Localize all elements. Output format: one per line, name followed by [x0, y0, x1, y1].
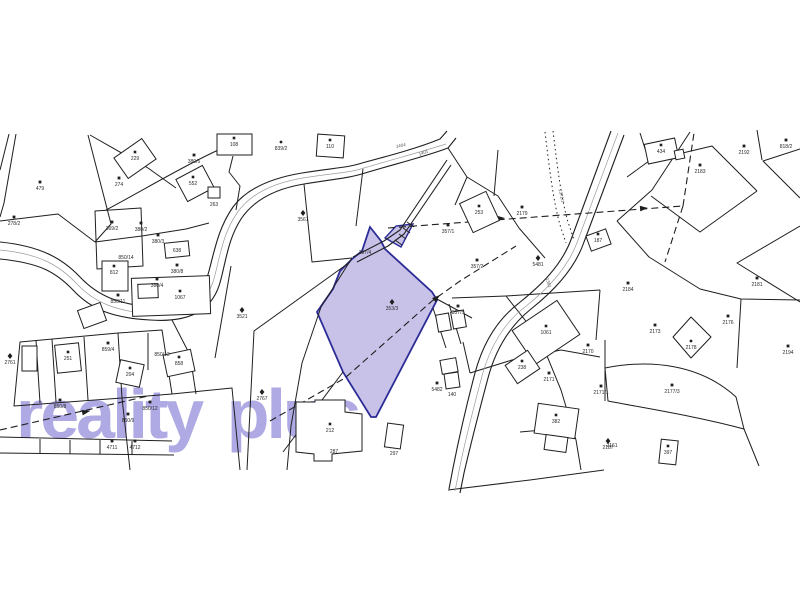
building-number-label: 552 [189, 181, 198, 187]
building-outline [440, 358, 458, 375]
parcel-number-label: 850/8 [54, 404, 67, 410]
building-outline [444, 372, 460, 389]
building-symbol [329, 139, 332, 142]
survey-arrow [640, 205, 648, 211]
parcel-number-label: 297 [390, 451, 399, 457]
parcel-number-label: 5481 [532, 262, 543, 268]
parcel-number-label: 263 [210, 202, 219, 208]
parcel-boundary [0, 134, 9, 170]
parcel-number-label: 818/2 [780, 144, 793, 150]
building-number-label: 397 [664, 450, 673, 456]
parcel-number-label: 2176 [722, 320, 733, 326]
building-number-label: 858 [175, 361, 184, 367]
dotted-path [553, 131, 574, 240]
building-symbol [113, 265, 116, 268]
parcel-symbol-square [654, 324, 657, 327]
parcel-boundary [229, 156, 240, 210]
parcel-boundary [561, 350, 600, 357]
parcel-symbol-square [111, 440, 114, 443]
parcel-label-group: 357/5 [452, 305, 465, 316]
parcel-number-label: 479 [36, 186, 45, 192]
parcel-symbol-square [743, 145, 746, 148]
parcel-symbol-square [13, 216, 16, 219]
building-outline [436, 313, 452, 332]
parcel-boundary [356, 169, 363, 226]
parcel-boundary [448, 470, 604, 490]
building-symbol [329, 423, 332, 426]
parcel-boundary [757, 130, 762, 160]
parcel-number-label: 3561 [297, 217, 308, 223]
parcel-number-label: 3521 [236, 314, 247, 320]
building-number-label: 1067 [174, 295, 185, 301]
building-number-label: 110 [326, 144, 334, 150]
parcel-boundary [463, 342, 470, 373]
parcel-symbol-square [727, 315, 730, 318]
parcel-number-label: 2171/1 [593, 390, 609, 396]
parcel-number-label: 1404 [395, 142, 406, 149]
cadastral-map: reality plus 229552108110106781225185820… [0, 0, 800, 600]
parcel-label-group: 140 [448, 392, 457, 398]
parcel-number-label: 2767 [256, 396, 267, 402]
parcel-boundary [304, 184, 352, 262]
parcel-boundary [651, 191, 757, 232]
parcel-label-group: 357/4 [359, 250, 372, 256]
parcel-boundary [452, 296, 506, 298]
parcel-boundary [737, 226, 800, 302]
parcel-symbol-square [436, 382, 439, 385]
parcel-symbol-diamond [8, 353, 13, 359]
parcel-symbol-square [117, 294, 120, 297]
dashed-boundary [683, 133, 694, 206]
parcel-number-label: 380/2 [135, 227, 148, 233]
parcel-symbol-square [111, 221, 114, 224]
parcel-symbol-square [457, 305, 460, 308]
parcel-number-label: 278/2 [8, 221, 21, 227]
parcel-label-group: 2173 [649, 324, 660, 335]
parcel-number-label: 850/13 [154, 352, 170, 358]
building-outline [674, 149, 685, 160]
dashed-boundary [665, 206, 683, 262]
parcel-number-label: 380/8 [171, 269, 184, 275]
parcel-number-label: 2192 [738, 150, 749, 156]
parcel-number-label: 380/4 [151, 283, 164, 289]
parcel-number-label: 850/11 [111, 299, 126, 305]
parcel-label-group: 263 [210, 202, 219, 208]
parcel-symbol-square [627, 282, 630, 285]
building-symbol [67, 351, 70, 354]
building-symbol [597, 233, 600, 236]
parcel-boundary [763, 149, 800, 198]
building-symbol [545, 325, 548, 328]
parcel-label-group: 850/11 [111, 294, 126, 305]
building-symbol [179, 290, 182, 293]
building-number-label: 212 [326, 428, 335, 434]
parcel-symbol-square [118, 177, 121, 180]
parcel-number-label: 357/2 [471, 264, 484, 270]
parcel-number-label: 380/3 [152, 239, 165, 245]
parcel-symbol-diamond [536, 255, 541, 261]
parcel-number-label: 357/5 [452, 310, 465, 316]
parcel-label-group: 479 [36, 181, 45, 192]
parcel-symbol-square [447, 224, 450, 227]
building-symbol [192, 176, 195, 179]
building-number-label: 251 [64, 356, 73, 362]
parcel-number-label: 2181 [751, 282, 762, 288]
parcel-number-label: 380/5 [188, 159, 201, 165]
parcel-boundary [596, 290, 600, 340]
parcel-symbol-square [156, 278, 159, 281]
parcel-symbol-dot [690, 340, 693, 343]
parcel-symbol-square [134, 440, 137, 443]
parcel-label-group: 2161 [606, 443, 617, 449]
parcel-symbol-square [140, 222, 143, 225]
parcel-label-group: 2177/3 [664, 384, 680, 395]
parcel-label-group: 2170 [582, 344, 593, 355]
building-number-label: 229 [131, 156, 140, 162]
parcel-number-label: 850/9 [122, 418, 135, 424]
parcel-symbol-square [699, 164, 702, 167]
parcel-symbol-square [476, 259, 479, 262]
parcel-symbol-square [107, 342, 110, 345]
parcel-label-group: 1404 [395, 142, 406, 149]
parcel-number-label: 2161 [606, 443, 617, 449]
parcel-number-label: 353/3 [386, 306, 399, 312]
building-number-label: 434 [657, 149, 666, 155]
parcel-symbol-square [787, 345, 790, 348]
parcel-symbol-square [671, 384, 674, 387]
parcel-number-label: 2171 [543, 377, 554, 383]
parcel-label-group: 380/3 [152, 234, 165, 245]
building-number-label: 187 [594, 238, 603, 244]
parcel-number-label: 4712 [129, 445, 140, 451]
parcel-label-group: 357/2 [471, 259, 484, 270]
building-outline [208, 187, 220, 198]
building-symbol [667, 445, 670, 448]
parcel-boundary [448, 148, 467, 205]
parcel-boundary [0, 453, 174, 455]
parcel-symbol-square [548, 372, 551, 375]
building-number-label: 204 [126, 372, 135, 378]
parcel-symbol-diamond [301, 210, 306, 216]
parcel-symbol-square [127, 413, 130, 416]
building-number-label: 382 [552, 419, 561, 425]
building-symbol [134, 151, 137, 154]
building-symbol [178, 356, 181, 359]
parcel-number-label: 5482 [431, 387, 442, 393]
parcel-label-group: 5482 [431, 382, 442, 393]
parcel-number-label: 140 [448, 392, 457, 398]
parcel-symbol-square [149, 401, 152, 404]
parcel-label-group: 2194 [782, 345, 793, 356]
parcel-label-group: 380/8 [171, 264, 184, 275]
parcel-symbol-square [39, 181, 42, 184]
parcel-number-label: 2194 [782, 350, 793, 356]
building-number-label: 812 [110, 270, 119, 276]
parcel-label-group: 278/2 [8, 216, 21, 227]
parcel-boundary [0, 134, 16, 217]
parcel-label-group: 2192 [738, 145, 749, 156]
parcel-number-label: 2183 [694, 169, 705, 175]
parcel-symbol-square [176, 264, 179, 267]
parcel-number-label: 1361 [545, 277, 553, 289]
road-centerline [455, 133, 618, 491]
parcel-label-group: 839/2 [275, 141, 288, 152]
parcel-number-label: 287 [330, 449, 339, 455]
building-number-label: 1061 [540, 330, 551, 336]
parcel-label-group: 3521 [236, 307, 247, 320]
parcel-symbol-square [193, 154, 196, 157]
building-outline [384, 423, 403, 449]
building-number-label: 108 [230, 142, 239, 148]
parcel-symbol-square [785, 139, 788, 142]
parcel-number-label: 2177/3 [664, 389, 680, 395]
parcel-number-label: 369/2 [106, 226, 119, 232]
parcel-number-label: 2178 [685, 345, 696, 351]
parcel-symbol-diamond [240, 307, 245, 313]
parcel-label-group: 297 [390, 451, 399, 457]
parcel-number-label: 274 [115, 182, 124, 188]
parcel-number-label: 2179 [516, 211, 527, 217]
parcel-number-label: 1371/1 [558, 188, 566, 203]
parcel-label-group: 818/2 [780, 139, 793, 150]
parcel-symbol-square [521, 206, 524, 209]
parcel-boundary [627, 133, 649, 177]
parcel-label-group: 2176 [722, 315, 733, 326]
parcel-label-group: 1361 [545, 277, 553, 289]
building-symbol [478, 205, 481, 208]
parcel-label-group: 287 [330, 449, 339, 455]
building-outline [22, 346, 37, 371]
building-symbol [129, 367, 132, 370]
parcel-label-group: 2178 [685, 340, 696, 351]
building-outline [544, 435, 568, 453]
parcel-number-label: 2170 [582, 349, 593, 355]
parcel-symbol-square [600, 385, 603, 388]
parcel-boundary [215, 266, 231, 358]
parcel-symbol-square [157, 234, 160, 237]
parcel-boundary [737, 299, 741, 368]
parcel-boundary [519, 228, 545, 258]
parcel-number-label: 850/14 [118, 255, 134, 261]
parcel-boundary [605, 364, 744, 429]
parcel-label-group: 380/2 [135, 222, 148, 233]
parcel-number-label: 839/2 [275, 146, 288, 152]
building-symbol [555, 414, 558, 417]
parcel-label-group: 850/14 [118, 255, 134, 261]
parcel-number-label: 357/4 [359, 250, 372, 256]
building-symbol [233, 137, 236, 140]
parcel-boundary [673, 317, 711, 358]
building-number-label: 253 [475, 210, 484, 216]
parcel-label-group: 638 [173, 248, 182, 254]
parcel-label-group: 5481 [532, 255, 543, 268]
building-outline [77, 302, 106, 328]
parcel-number-label: 638 [173, 248, 182, 254]
parcel-symbol-dot [280, 141, 283, 144]
parcel-label-group: 859/4 [102, 342, 115, 353]
parcel-label-group: 380/5 [188, 154, 201, 165]
parcel-number-label: 2173 [649, 329, 660, 335]
parcel-boundary [744, 429, 759, 466]
parcel-boundary [617, 221, 800, 300]
parcel-label-group: 369/2 [106, 221, 119, 232]
parcel-label-group: 2761 [4, 353, 15, 366]
parcel-label-group: 2183 [694, 164, 705, 175]
parcel-label-group: 357/1 [442, 224, 455, 235]
parcel-number-label: 4711 [107, 445, 118, 451]
parcel-number-label: 2761 [4, 360, 15, 366]
map-viewport: reality plus 229552108110106781225185820… [0, 0, 800, 600]
parcel-label-group: 2184 [622, 282, 633, 293]
parcel-number-label: 357/1 [442, 229, 455, 235]
building-symbol [521, 360, 524, 363]
parcel-symbol-square [59, 399, 62, 402]
parcel-boundary [506, 290, 600, 296]
parcel-label-group: 2179 [516, 206, 527, 217]
parcel-symbol-square [587, 344, 590, 347]
building-symbol [660, 144, 663, 147]
parcel-boundary [494, 150, 498, 196]
parcel-label-group: 1371/1 [558, 188, 566, 203]
parcel-label-group: 274 [115, 177, 124, 188]
parcel-label-group: 850/13 [154, 352, 170, 358]
parcel-symbol-square [756, 277, 759, 280]
parcel-number-label: 850/12 [142, 406, 158, 412]
building-number-label: 238 [518, 365, 527, 371]
parcel-label-group: 2171 [543, 372, 554, 383]
parcel-number-label: 859/4 [102, 347, 115, 353]
dashed-boundary [388, 206, 683, 228]
parcel-number-label: 2184 [622, 287, 633, 293]
